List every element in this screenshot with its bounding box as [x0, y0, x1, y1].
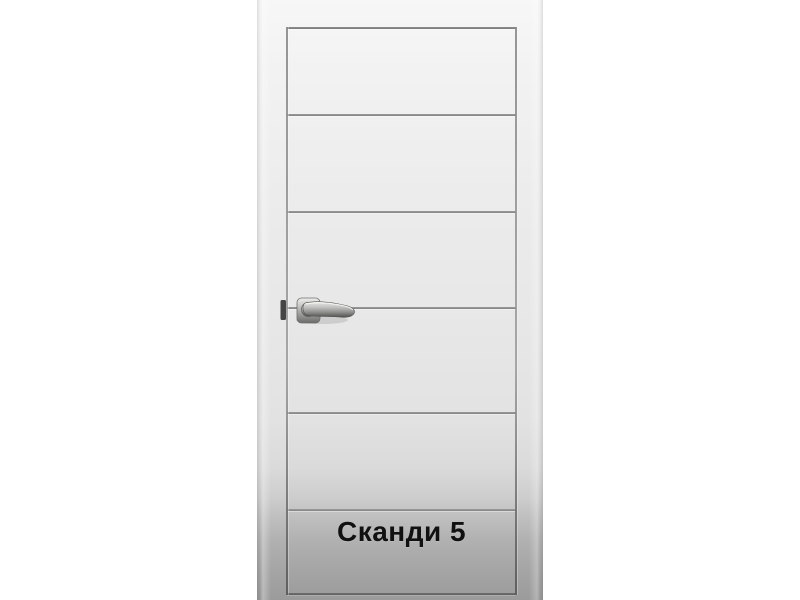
door-groove-horizontal — [287, 114, 516, 116]
product-photo: Сканди 5 — [0, 0, 800, 600]
door-groove-vertical — [515, 27, 517, 595]
handle-lever — [303, 302, 355, 318]
door-groove-horizontal — [287, 211, 516, 213]
door-groove-horizontal — [287, 593, 516, 595]
product-label: Сканди 5 — [287, 516, 516, 548]
door-groove-horizontal — [287, 509, 516, 511]
handle-edge-plate — [281, 300, 287, 320]
door-handle — [278, 292, 360, 332]
door-leaf: Сканди 5 — [257, 0, 543, 600]
door-groove-horizontal — [287, 412, 516, 414]
door-groove-horizontal — [287, 27, 516, 29]
